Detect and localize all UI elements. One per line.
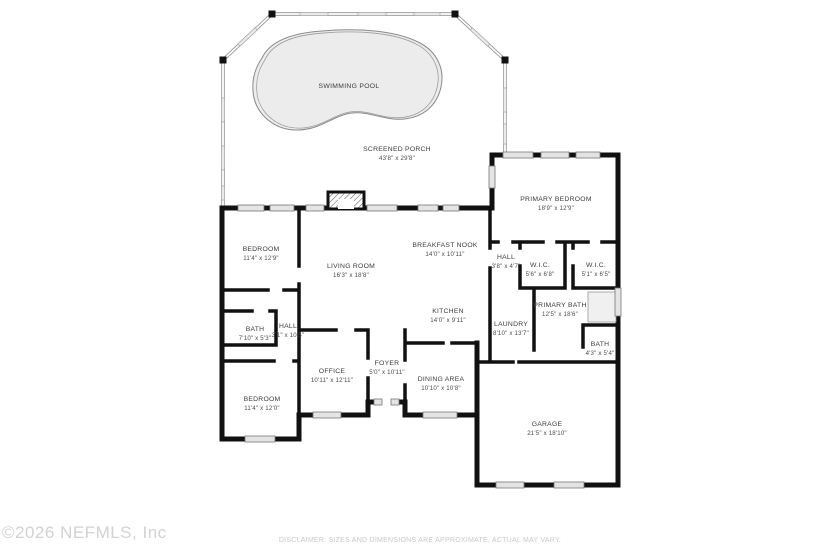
room-dims: 3'1" x 10'5" — [272, 332, 304, 339]
room-dims: 11'4" x 12'0" — [244, 405, 280, 412]
room-label: OFFICE — [319, 368, 346, 375]
room-label: HALL — [497, 254, 515, 261]
disclaimer-text: DISCLAIMER: SIZES AND DIMENSIONS ARE APP… — [0, 537, 840, 544]
room-dims: 5'6" x 6'8" — [526, 271, 555, 278]
room-dims: 14'0" x 9'11" — [430, 317, 466, 324]
room-label: BATH — [246, 326, 265, 333]
room-label: HALL — [279, 323, 297, 330]
room-label: LIVING ROOM — [327, 263, 375, 270]
room-label: BATH — [591, 341, 610, 348]
room-dims: 12'5" x 18'6" — [542, 311, 578, 318]
garden-tub — [588, 292, 616, 322]
room-label: PRIMARY BATH — [533, 302, 586, 309]
room-dims: 5'0" x 10'11" — [369, 369, 405, 376]
room-dims: 10'10" x 10'8" — [421, 385, 461, 392]
room-dims: 7'10" x 5'3" — [239, 335, 271, 342]
room-dims: 10'11" x 12'11" — [311, 377, 353, 384]
room-label: BREAKFAST NOOK — [412, 242, 478, 249]
room-label: PRIMARY BEDROOM — [520, 196, 592, 203]
room-labels: SWIMMING POOL SCREENED PORCH 43'8" x 29'… — [239, 83, 615, 437]
room-label: FOYER — [375, 360, 400, 367]
room-label: DINING AREA — [418, 376, 465, 383]
room-label: KITCHEN — [432, 308, 464, 315]
room-dims: 3'8" x 4'7" — [492, 263, 521, 270]
room-dims: 8'10" x 13'7" — [493, 330, 529, 337]
room-label: BEDROOM — [244, 396, 281, 403]
room-dims: 4'3" x 5'4" — [586, 350, 615, 357]
floor-plan: SWIMMING POOL SCREENED PORCH 43'8" x 29'… — [0, 0, 840, 520]
room-dims: 14'0" x 10'11" — [425, 251, 464, 258]
room-label: LAUNDRY — [494, 321, 528, 328]
room-dims: 11'4" x 12'9" — [243, 255, 279, 262]
swimming-pool — [253, 30, 442, 130]
room-label: W.I.C. — [530, 262, 550, 269]
room-label: SCREENED PORCH — [363, 146, 431, 153]
room-dims: 18'9" x 12'9" — [538, 205, 574, 212]
room-dims: 43'8" x 29'8" — [379, 155, 415, 162]
room-dims: 16'3" x 18'8" — [333, 272, 369, 279]
fireplace — [328, 192, 364, 209]
pool-label: SWIMMING POOL — [319, 83, 380, 90]
floor-plan-canvas: SWIMMING POOL SCREENED PORCH 43'8" x 29'… — [0, 0, 840, 520]
room-label: GARAGE — [532, 421, 563, 428]
room-dims: 21'5" x 18'10" — [527, 430, 567, 437]
room-label: BEDROOM — [243, 246, 280, 253]
room-dims: 5'1" x 6'5" — [582, 271, 611, 278]
room-label: W.I.C. — [586, 262, 606, 269]
